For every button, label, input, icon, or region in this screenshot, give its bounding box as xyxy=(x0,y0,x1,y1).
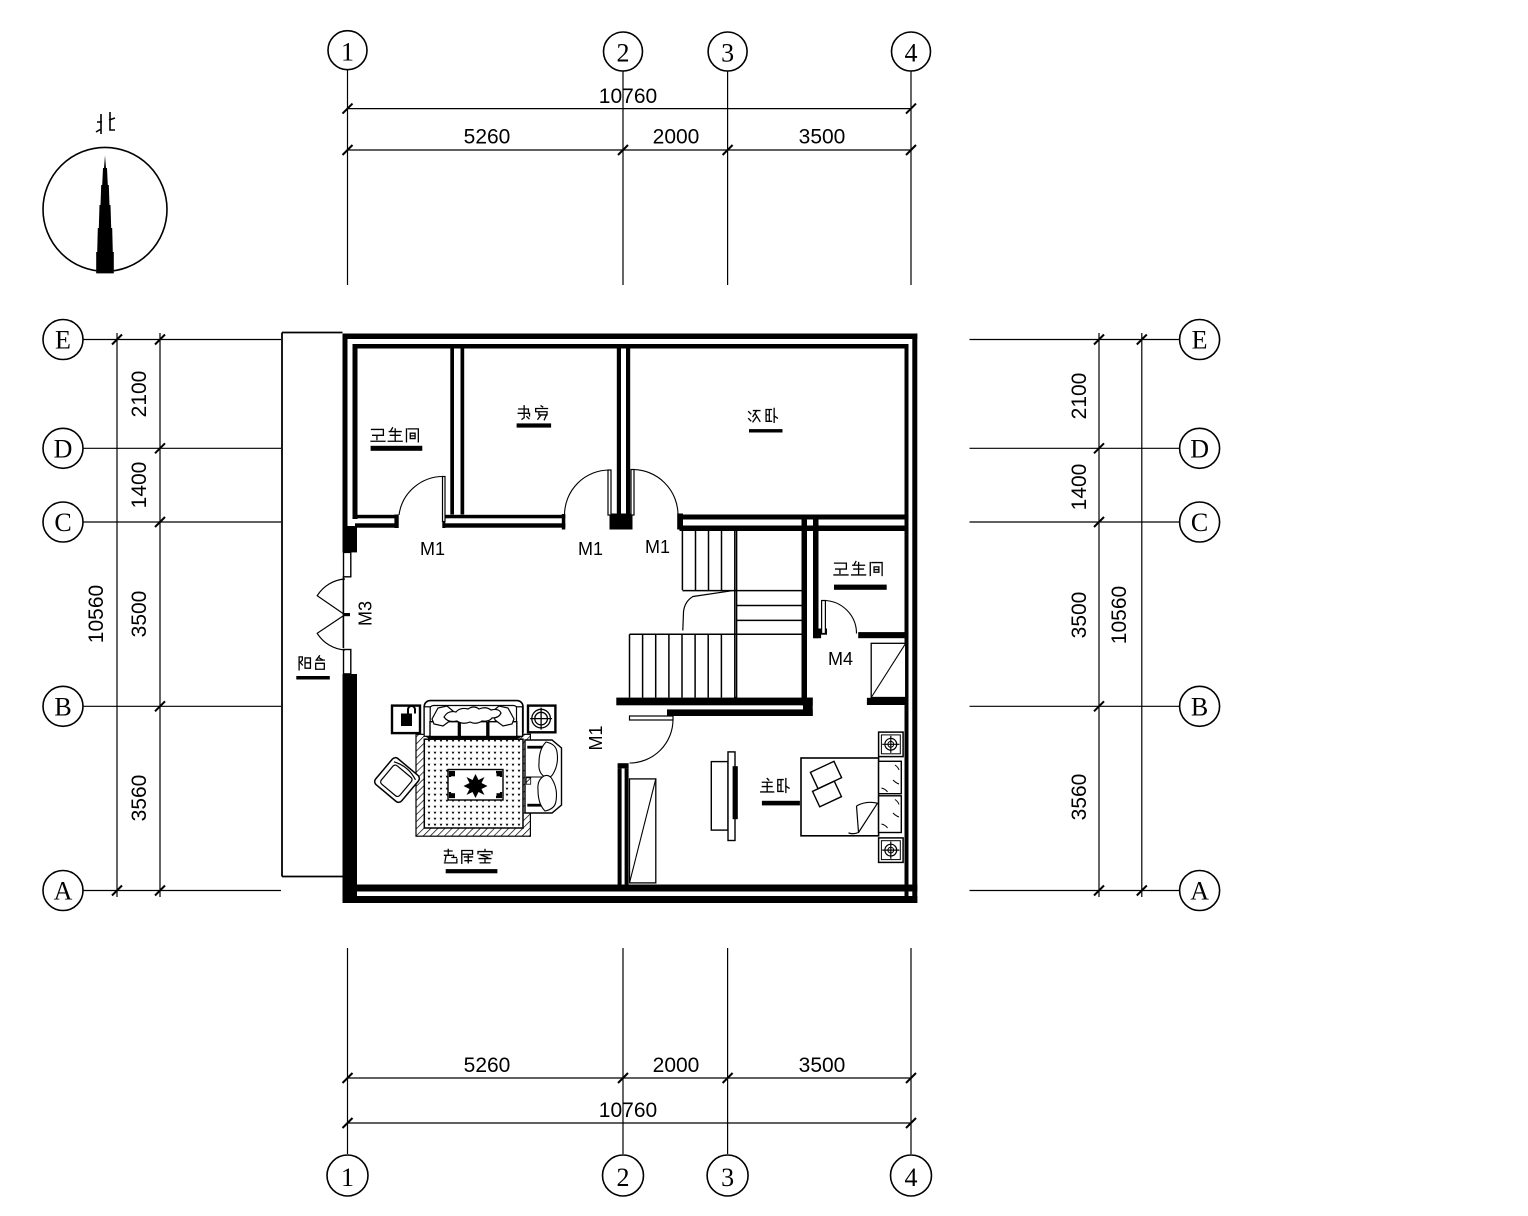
svg-text:5260: 5260 xyxy=(464,1054,511,1077)
svg-text:M1: M1 xyxy=(578,539,603,559)
svg-text:M3: M3 xyxy=(356,601,376,626)
svg-text:2000: 2000 xyxy=(653,1054,700,1077)
svg-text:1: 1 xyxy=(341,1163,354,1192)
svg-text:10760: 10760 xyxy=(599,85,657,108)
svg-text:2100: 2100 xyxy=(128,371,151,418)
svg-text:M1: M1 xyxy=(420,539,445,559)
svg-text:1400: 1400 xyxy=(128,462,151,509)
svg-text:D: D xyxy=(54,434,73,463)
svg-text:3: 3 xyxy=(721,1163,734,1192)
svg-text:10760: 10760 xyxy=(599,1099,657,1122)
svg-text:B: B xyxy=(1191,692,1208,721)
svg-text:3560: 3560 xyxy=(1068,774,1091,821)
svg-text:2: 2 xyxy=(617,39,630,68)
svg-text:10560: 10560 xyxy=(1108,586,1131,644)
svg-text:3: 3 xyxy=(721,39,734,68)
svg-text:5260: 5260 xyxy=(464,126,511,149)
svg-text:M1: M1 xyxy=(586,725,606,750)
svg-text:2000: 2000 xyxy=(653,126,700,149)
svg-text:A: A xyxy=(54,877,73,906)
svg-text:4: 4 xyxy=(905,1163,918,1192)
svg-text:B: B xyxy=(54,692,71,721)
svg-text:E: E xyxy=(1192,326,1208,355)
svg-text:3500: 3500 xyxy=(128,591,151,638)
svg-text:M4: M4 xyxy=(828,649,853,669)
svg-text:M1: M1 xyxy=(645,537,670,557)
svg-text:10560: 10560 xyxy=(85,585,108,643)
svg-text:A: A xyxy=(1190,877,1209,906)
svg-text:D: D xyxy=(1190,434,1209,463)
svg-text:1: 1 xyxy=(341,38,354,67)
svg-text:2: 2 xyxy=(617,1163,630,1192)
svg-text:3500: 3500 xyxy=(799,126,846,149)
svg-text:2100: 2100 xyxy=(1068,373,1091,420)
svg-text:3500: 3500 xyxy=(1068,592,1091,639)
svg-text:3560: 3560 xyxy=(128,775,151,822)
svg-text:C: C xyxy=(1191,508,1208,537)
svg-text:C: C xyxy=(54,508,71,537)
svg-text:1400: 1400 xyxy=(1068,464,1091,511)
svg-text:E: E xyxy=(55,326,71,355)
svg-text:3500: 3500 xyxy=(799,1054,846,1077)
svg-text:4: 4 xyxy=(905,39,918,68)
